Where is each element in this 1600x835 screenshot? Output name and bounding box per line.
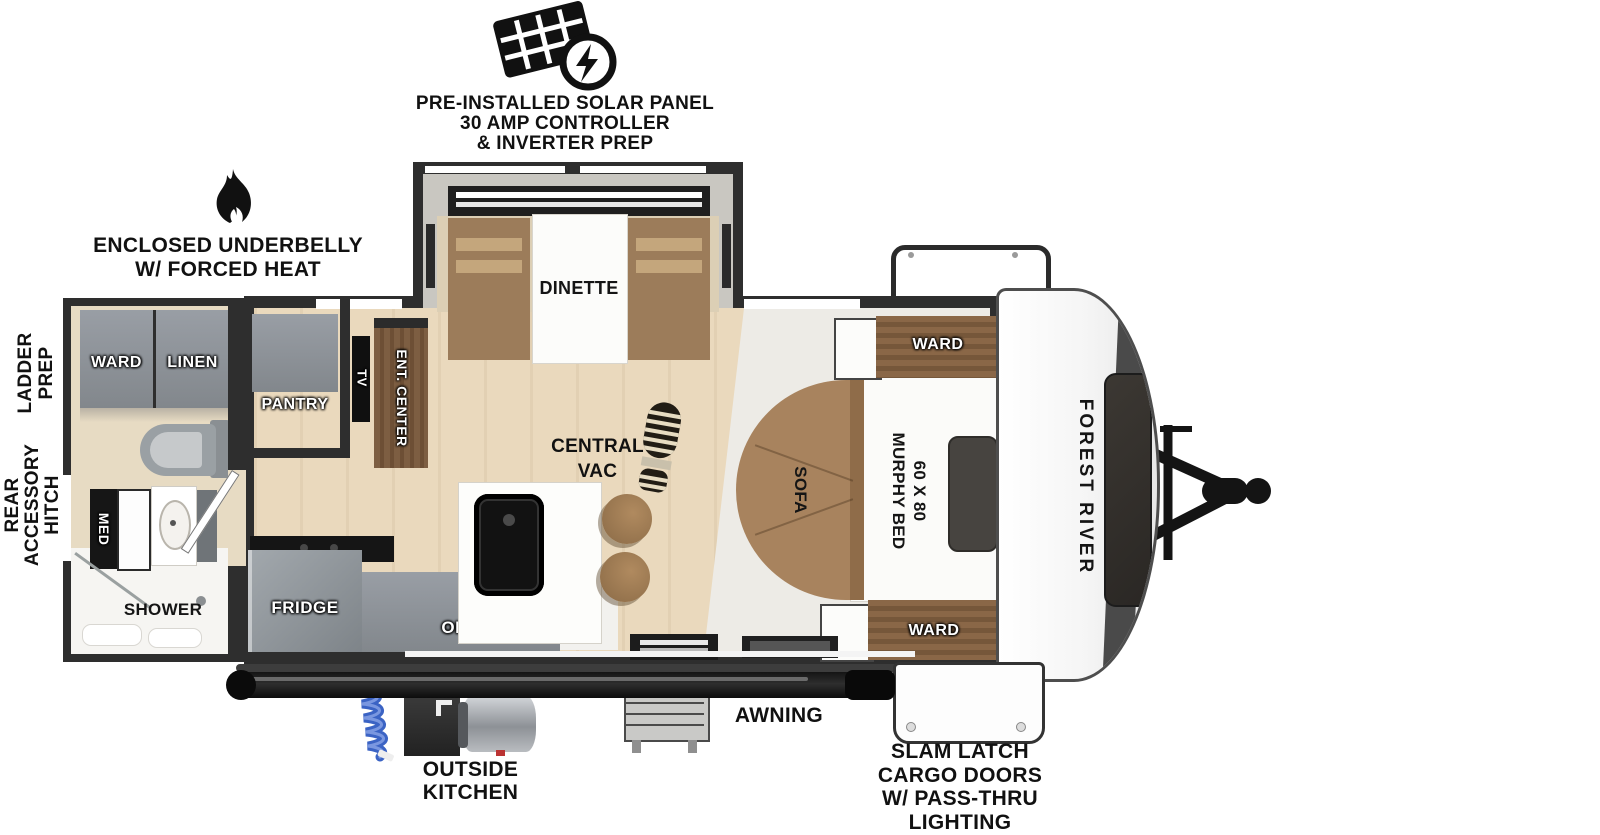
griddle-knob xyxy=(496,750,505,756)
slideout-top-window xyxy=(580,166,706,173)
bathroom-window xyxy=(63,472,71,564)
pantry-wall-h xyxy=(244,448,350,458)
underbelly-annotation: ENCLOSED UNDERBELLY W/ FORCED HEAT xyxy=(58,234,398,282)
awning-roller xyxy=(230,672,894,698)
shower-tile xyxy=(148,628,202,648)
linen-label: LINEN xyxy=(156,354,229,372)
bench-cushion xyxy=(636,238,702,251)
bench-cushion xyxy=(636,260,702,273)
cargo-door-latch xyxy=(1016,722,1026,732)
island-sink-drain xyxy=(503,514,515,526)
entry-steps xyxy=(624,692,710,742)
bed-pillow xyxy=(948,436,998,552)
awning-rail-highlight xyxy=(405,651,915,657)
rack-screw xyxy=(1012,252,1018,258)
dinette-label: DINETTE xyxy=(524,278,634,299)
slideout-side-window xyxy=(426,224,435,288)
pantry-cabinet xyxy=(252,314,338,392)
island-sink xyxy=(474,494,544,596)
boot-print-icon xyxy=(636,400,682,496)
window-slit xyxy=(456,192,702,198)
bath-ward-label: WARD xyxy=(80,354,153,372)
stool xyxy=(600,552,650,602)
flame-icon xyxy=(210,168,256,230)
window-slit xyxy=(456,202,702,207)
griddle-cap xyxy=(458,702,468,748)
bed-ward-bottom-label: WARD xyxy=(868,622,1000,640)
bench-cushion xyxy=(456,238,522,251)
step-leg xyxy=(632,740,641,753)
bed-ward-top-label: WARD xyxy=(876,336,1000,354)
slam-latch-annotation: SLAM LATCH CARGO DOORS W/ PASS-THRU LIGH… xyxy=(855,740,1065,834)
awning-rail xyxy=(236,664,936,672)
window-glass xyxy=(750,641,830,651)
window-top-right xyxy=(744,299,860,309)
cargo-door-latch xyxy=(906,722,916,732)
solar-panel-icon xyxy=(490,0,620,95)
roller-endcap-right xyxy=(845,670,895,700)
bath-mirror xyxy=(117,489,151,571)
roller-endcap-left xyxy=(226,670,256,700)
ent-center-top xyxy=(374,318,428,328)
pantry-wall-v xyxy=(340,296,350,456)
slideout-top-window xyxy=(425,166,565,173)
rv-floorplan: PRE-INSTALLED SOLAR PANEL 30 AMP CONTROL… xyxy=(0,0,1600,835)
outdoor-faucet xyxy=(436,700,441,716)
window-top-left xyxy=(316,299,402,309)
shower-label: SHOWER xyxy=(93,600,233,620)
slideout-side-window xyxy=(722,224,731,288)
fridge-label: FRIDGE xyxy=(248,598,362,618)
step-tread xyxy=(626,724,704,726)
roller-highlight xyxy=(252,677,808,681)
step-tread xyxy=(626,702,704,704)
toilet-seat xyxy=(150,432,202,468)
bench-cushion xyxy=(456,260,522,273)
slideout-rear-window xyxy=(448,186,710,216)
rack-screw xyxy=(908,252,914,258)
shower-tile xyxy=(82,624,142,646)
ward-side-panel xyxy=(834,318,882,380)
step-tread xyxy=(626,713,704,715)
door-window xyxy=(640,640,708,645)
sink-drain xyxy=(170,520,176,526)
outside-kitchen-label: OUTSIDE KITCHEN xyxy=(398,758,543,804)
awning-label: AWNING xyxy=(709,704,849,728)
stool xyxy=(602,494,652,544)
outdoor-griddle xyxy=(462,696,536,752)
cap-window xyxy=(1104,373,1152,607)
cabinet-shadow xyxy=(80,408,229,422)
step-leg xyxy=(688,740,697,753)
pantry-label: PANTRY xyxy=(248,396,342,414)
solar-annotation: PRE-INSTALLED SOLAR PANEL 30 AMP CONTROL… xyxy=(395,94,735,154)
